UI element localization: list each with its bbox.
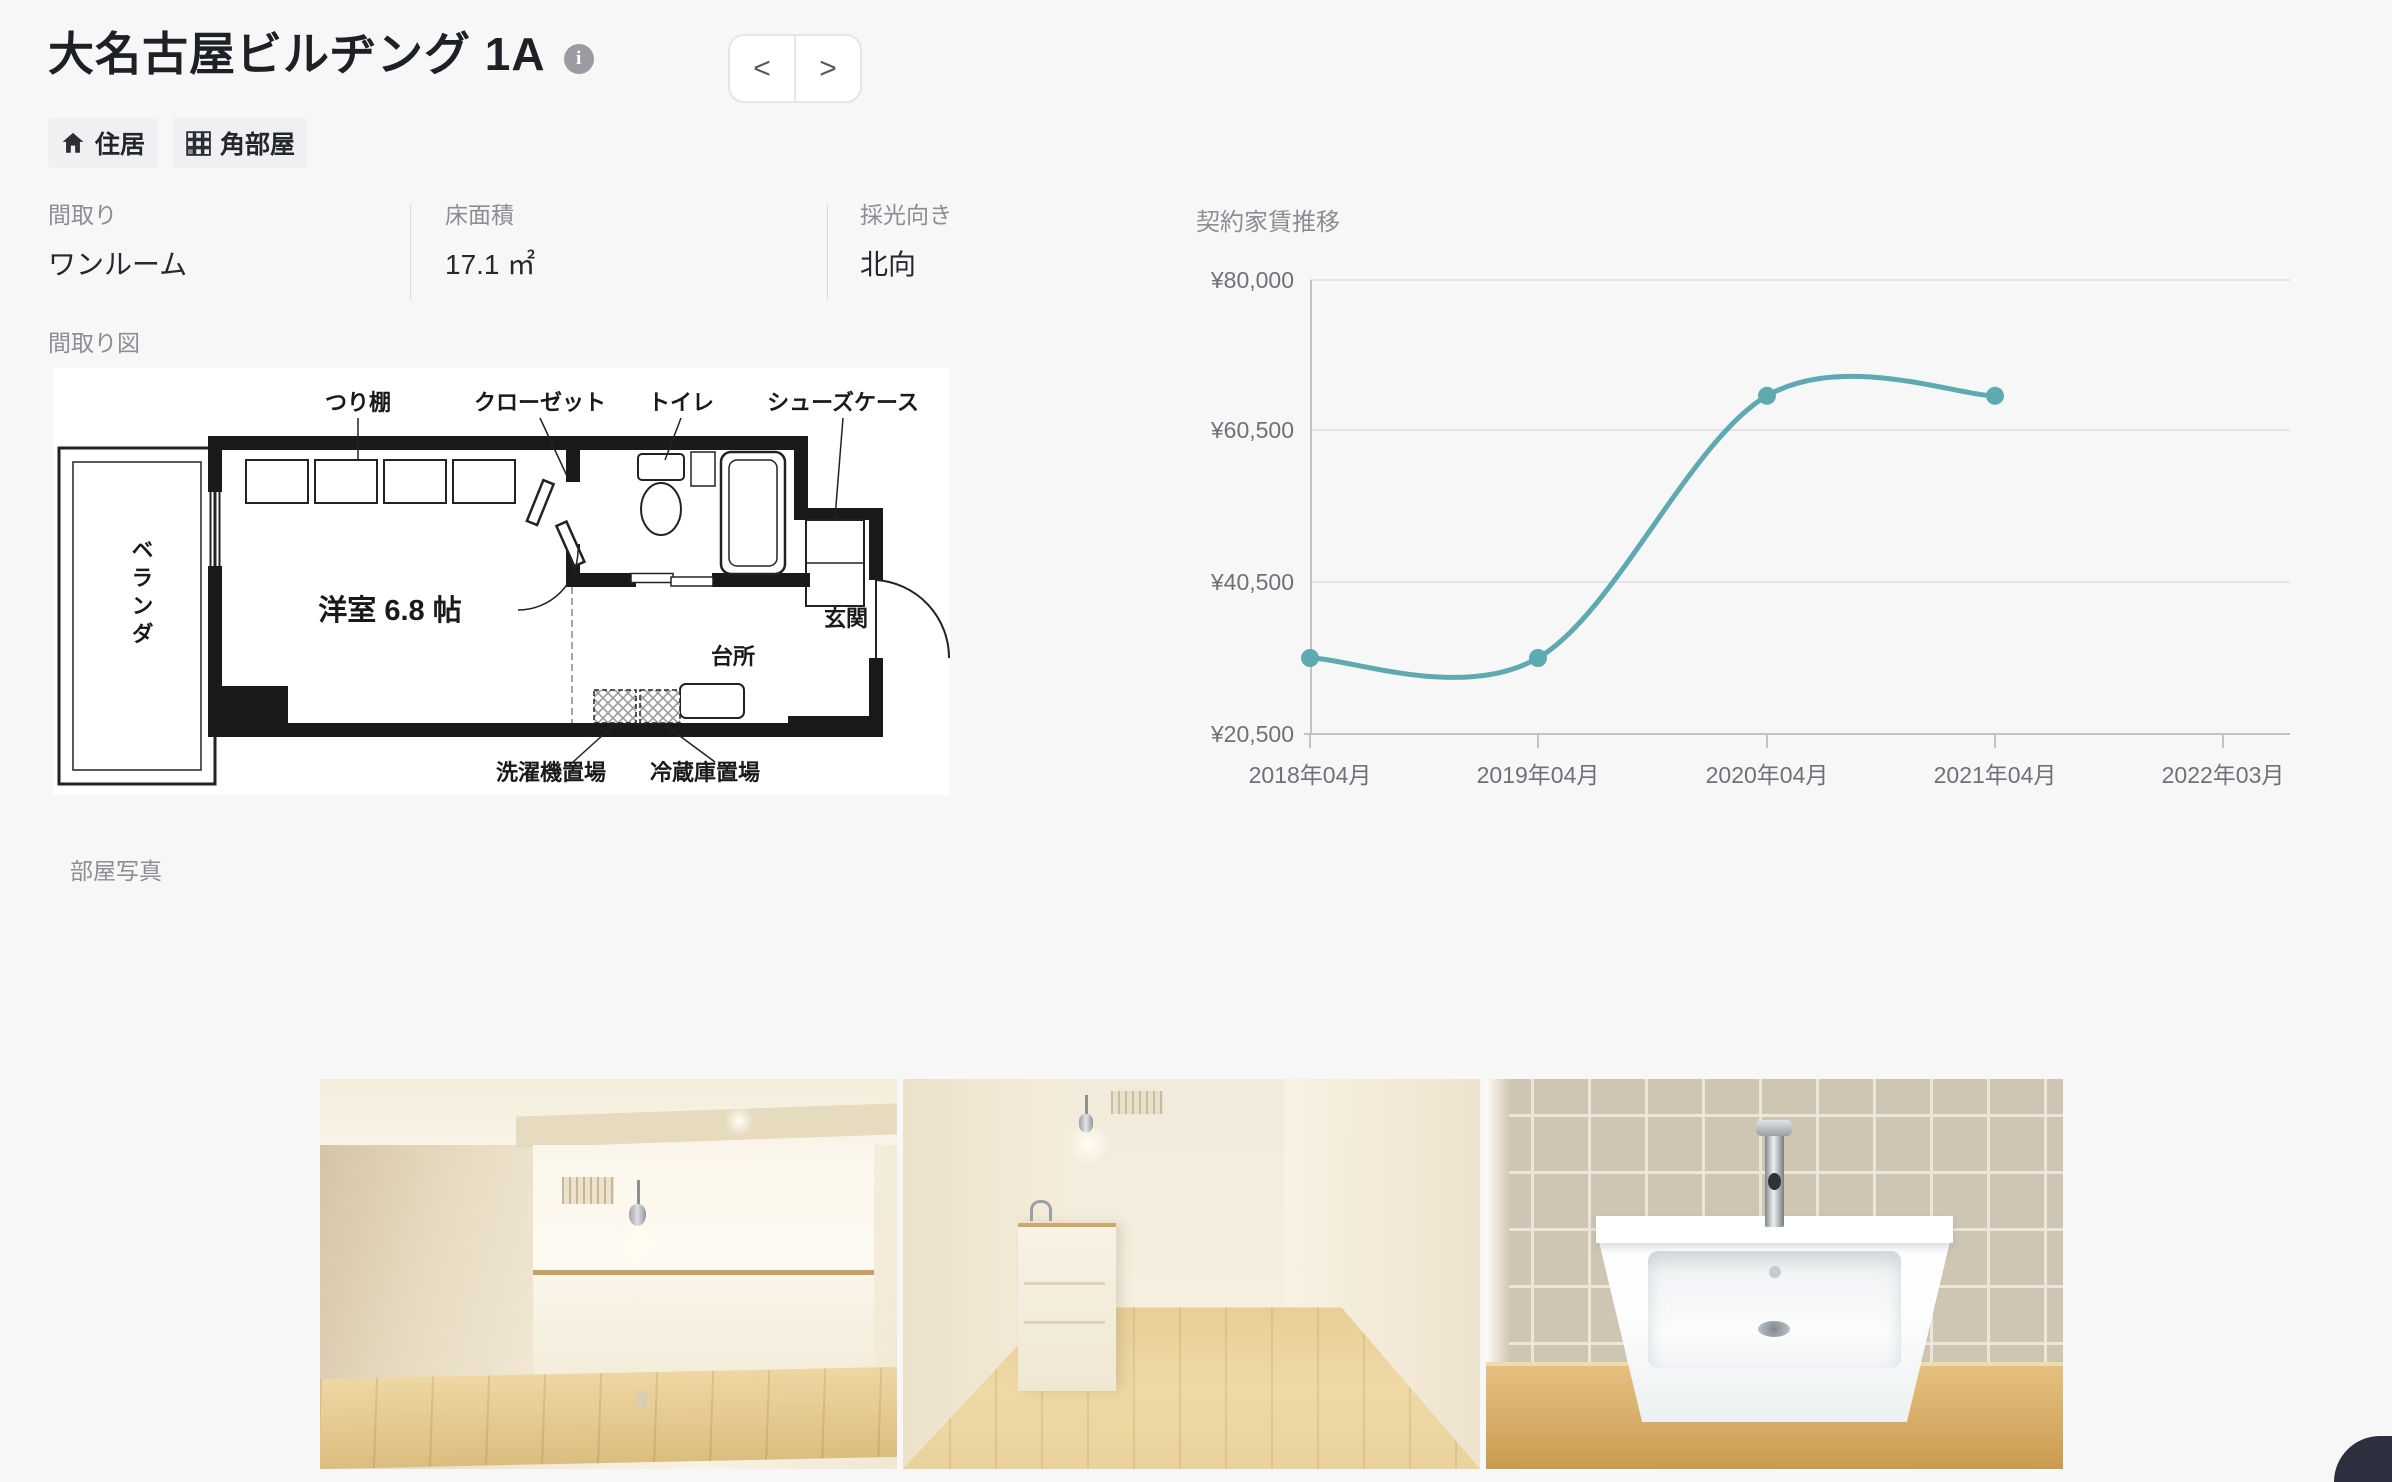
detail-layout: 間取り ワンルーム <box>48 200 187 282</box>
hallway-photo[interactable] <box>903 1079 1480 1469</box>
y-tick-label: ¥20,500 <box>1150 719 1294 749</box>
room-photo-opening <box>533 1145 873 1270</box>
room-photo[interactable] <box>320 1079 897 1469</box>
floorplan-entrance-label: 玄関 <box>824 606 868 631</box>
floorplan-closet-label: クローゼット <box>474 390 606 415</box>
floorplan-fridge-label: 冷蔵庫置場 <box>650 760 760 785</box>
tag-corner-room: 角部屋 <box>173 118 307 168</box>
corner-widget[interactable] <box>2334 1436 2392 1482</box>
next-button[interactable]: > <box>796 36 860 101</box>
detail-value: ワンルーム <box>48 248 187 282</box>
rent-data-point[interactable] <box>1758 387 1776 405</box>
detail-divider <box>827 204 828 300</box>
floorplan-svg: ベランダ <box>53 368 950 795</box>
rent-chart: 契約家賃推移 ¥80,000 ¥60,500 ¥40,500 ¥20,500 2… <box>1150 180 2330 840</box>
hallway-photo-lamp <box>1079 1114 1093 1132</box>
room-photo-lamp <box>629 1204 646 1226</box>
gallery-nav: < > <box>728 34 862 103</box>
room-photo-lamp-stem <box>637 1180 640 1206</box>
x-tick-label: 2021年04月 <box>1934 756 2057 790</box>
hallway-photo-counter <box>1018 1223 1116 1391</box>
floorplan-section-label: 間取り図 <box>48 324 140 358</box>
detail-divider <box>410 204 411 300</box>
page-title: 大名古屋ビルヂング 1A <box>48 26 546 82</box>
sink-photo[interactable] <box>1486 1079 2063 1469</box>
rent-line-svg <box>1310 280 2290 780</box>
rent-data-point[interactable] <box>1986 387 2004 405</box>
detail-floor-area: 床面積 17.1 ㎡ <box>445 200 535 282</box>
x-tick-label: 2022年03月 <box>2162 756 2285 790</box>
photos-section-label: 部屋写真 <box>70 852 162 886</box>
rent-line <box>1310 376 1995 677</box>
tag-residence: 住居 <box>48 118 157 168</box>
sink-photo-wall-edge <box>1486 1079 1509 1368</box>
floorplan-kitchen-label: 台所 <box>711 644 755 669</box>
photo-strip <box>320 1079 2063 1469</box>
sink-photo-faucet-handle <box>1768 1173 1781 1190</box>
room-photo-socket <box>637 1391 647 1407</box>
sink-photo-drain <box>1758 1321 1790 1337</box>
info-icon[interactable]: i <box>564 44 594 74</box>
sink-photo-faucet-head <box>1756 1120 1792 1136</box>
floorplan-toilet-label: トイレ <box>648 390 714 415</box>
floorplan-washer-label: 洗濯機置場 <box>496 760 606 785</box>
x-tick-label: 2019年04月 <box>1477 756 1600 790</box>
detail-label: 床面積 <box>445 200 535 230</box>
tag-label: 角部屋 <box>220 125 295 161</box>
hallway-photo-faucet <box>1030 1200 1052 1221</box>
y-tick-label: ¥80,000 <box>1150 265 1294 295</box>
x-tick-label: 2020年04月 <box>1706 756 1829 790</box>
detail-label: 間取り <box>48 200 187 230</box>
detail-value: 17.1 ㎡ <box>445 248 535 282</box>
detail-label: 採光向き <box>860 200 952 230</box>
x-tick-label: 2018年04月 <box>1249 756 1372 790</box>
hallway-photo-drawer <box>1024 1282 1105 1285</box>
room-photo-lamp-glow <box>614 1219 664 1269</box>
floorplan-shelf-label: つり棚 <box>325 390 391 415</box>
room-photo-vent <box>562 1177 614 1204</box>
prev-button[interactable]: < <box>730 36 794 101</box>
hallway-photo-drawer <box>1024 1321 1105 1324</box>
floorplan-veranda-label: ベランダ <box>129 538 154 650</box>
page-header: 大名古屋ビルヂング 1A i <box>48 26 594 82</box>
hallway-photo-vent <box>1111 1091 1163 1114</box>
floorplan-room-label: 洋室 6.8 帖 <box>318 594 461 627</box>
corner-grid-icon <box>185 130 211 156</box>
room-photo-floor <box>320 1367 897 1469</box>
y-tick-label: ¥60,500 <box>1150 415 1294 445</box>
y-tick-label: ¥40,500 <box>1150 567 1294 597</box>
floorplan-image: ベランダ <box>53 368 950 795</box>
x-axis-ticks <box>1310 734 2223 748</box>
rent-data-point[interactable] <box>1529 649 1547 667</box>
room-photo-downlight <box>724 1106 754 1136</box>
property-details: 間取り ワンルーム 床面積 17.1 ㎡ 採光向き 北向 <box>48 200 1088 304</box>
detail-value: 北向 <box>860 248 952 282</box>
tag-label: 住居 <box>95 125 145 161</box>
home-icon <box>60 130 86 156</box>
rent-data-point[interactable] <box>1301 649 1319 667</box>
chart-title: 契約家賃推移 <box>1196 202 1340 237</box>
sink-photo-overflow-hole <box>1769 1266 1781 1278</box>
detail-lighting: 採光向き 北向 <box>860 200 952 282</box>
tag-row: 住居 角部屋 <box>48 118 307 168</box>
floorplan-shoecase-label: シューズケース <box>767 390 919 415</box>
